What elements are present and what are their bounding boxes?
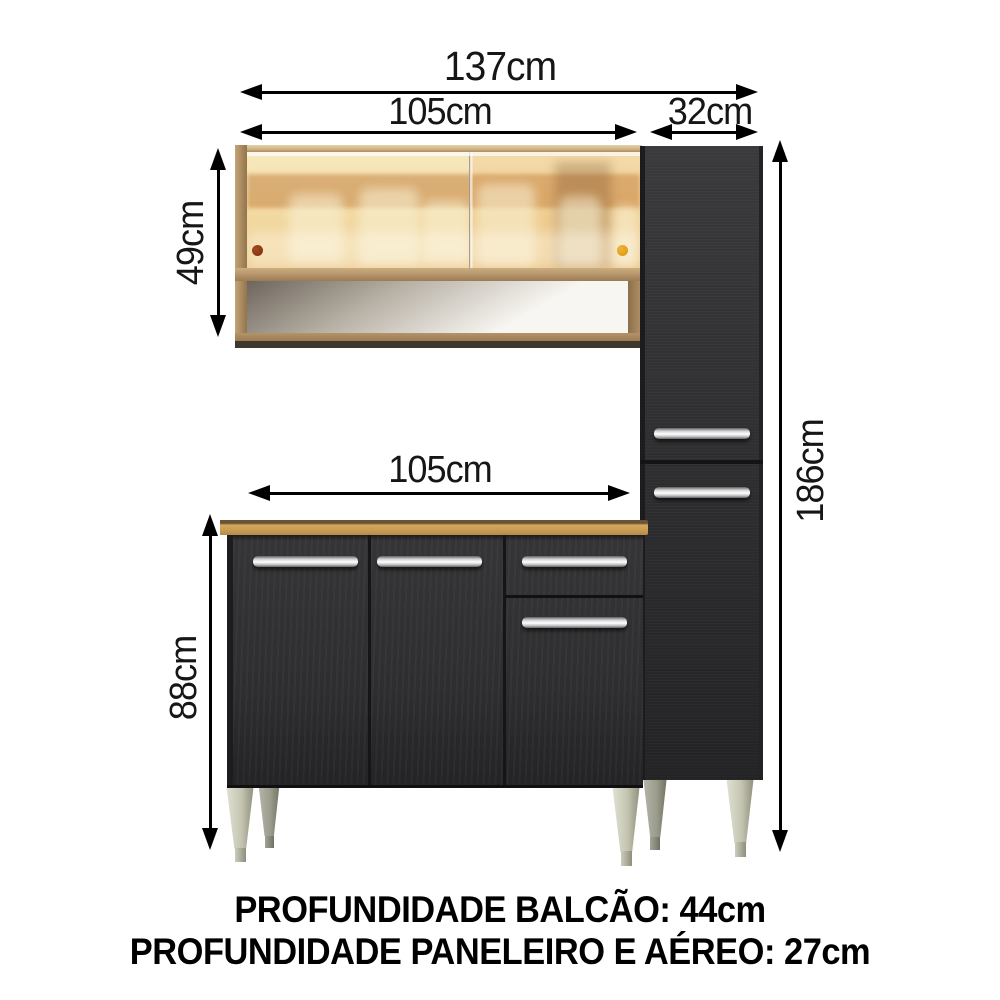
upper-cabinet-underside <box>235 341 642 348</box>
countertop <box>220 520 648 535</box>
base-door-right-handle <box>522 617 627 628</box>
cabinet-leg <box>612 788 640 866</box>
upper-cabinet-mid-rail <box>235 268 642 281</box>
drawer-division <box>505 595 643 598</box>
tall-cabinet-upper-handle <box>654 428 750 439</box>
countertop-shadow <box>227 535 643 541</box>
base-cabinet <box>227 535 643 788</box>
kitchen-cabinet-dimension-diagram: 137cm 105cm 32cm 49cm 186cm 105cm 88cm P… <box>0 0 1000 1000</box>
dimension-label-base-width: 105cm <box>345 449 535 491</box>
sliding-door-seam <box>469 152 473 268</box>
upper-cabinet-bottom-rail <box>235 333 642 341</box>
door-division <box>503 535 506 788</box>
footer-depth-balcao: PROFUNDIDADE BALCÃO: 44cm <box>35 889 965 931</box>
glass-top-reflection <box>247 152 640 156</box>
open-shelf-niche <box>247 281 628 333</box>
glass-lower-reflection <box>247 232 640 268</box>
cabinet-leg <box>226 788 254 862</box>
cabinet-leg <box>258 784 280 848</box>
cabinet-leg <box>643 780 667 850</box>
dimension-label-tall-width: 32cm <box>634 91 786 133</box>
door-division <box>368 535 371 788</box>
dimension-label-upper-height: 49cm <box>171 177 211 310</box>
tall-cabinet-lower-handle <box>654 487 750 498</box>
tall-cabinet <box>640 146 763 780</box>
door-knob-left <box>252 245 263 256</box>
base-cabinet-bottom-edge <box>227 785 643 788</box>
base-drawer-handle <box>522 556 627 567</box>
dimension-label-base-height: 88cm <box>164 612 204 745</box>
upper-cabinet <box>235 145 642 348</box>
dimension-label-tall-height: 186cm <box>791 405 831 538</box>
base-door-middle-handle <box>377 556 482 567</box>
upper-cabinet-top-edge <box>235 145 642 152</box>
glass-sliding-doors <box>247 152 640 269</box>
dimension-arrow-tall-height <box>772 140 788 852</box>
dimension-label-total-width: 137cm <box>396 43 605 89</box>
door-knob-right <box>617 245 628 256</box>
upper-cabinet-left-side <box>235 145 247 341</box>
dimension-label-upper-width: 105cm <box>345 91 535 133</box>
cabinet-leg <box>726 780 754 857</box>
base-cabinet-left-edge <box>227 535 233 788</box>
base-door-left-handle <box>253 556 358 567</box>
footer-depth-paneleiro-aereo: PROFUNDIDADE PANELEIRO E AÉREO: 27cm <box>35 931 965 973</box>
tall-cabinet-door-split <box>640 460 763 464</box>
